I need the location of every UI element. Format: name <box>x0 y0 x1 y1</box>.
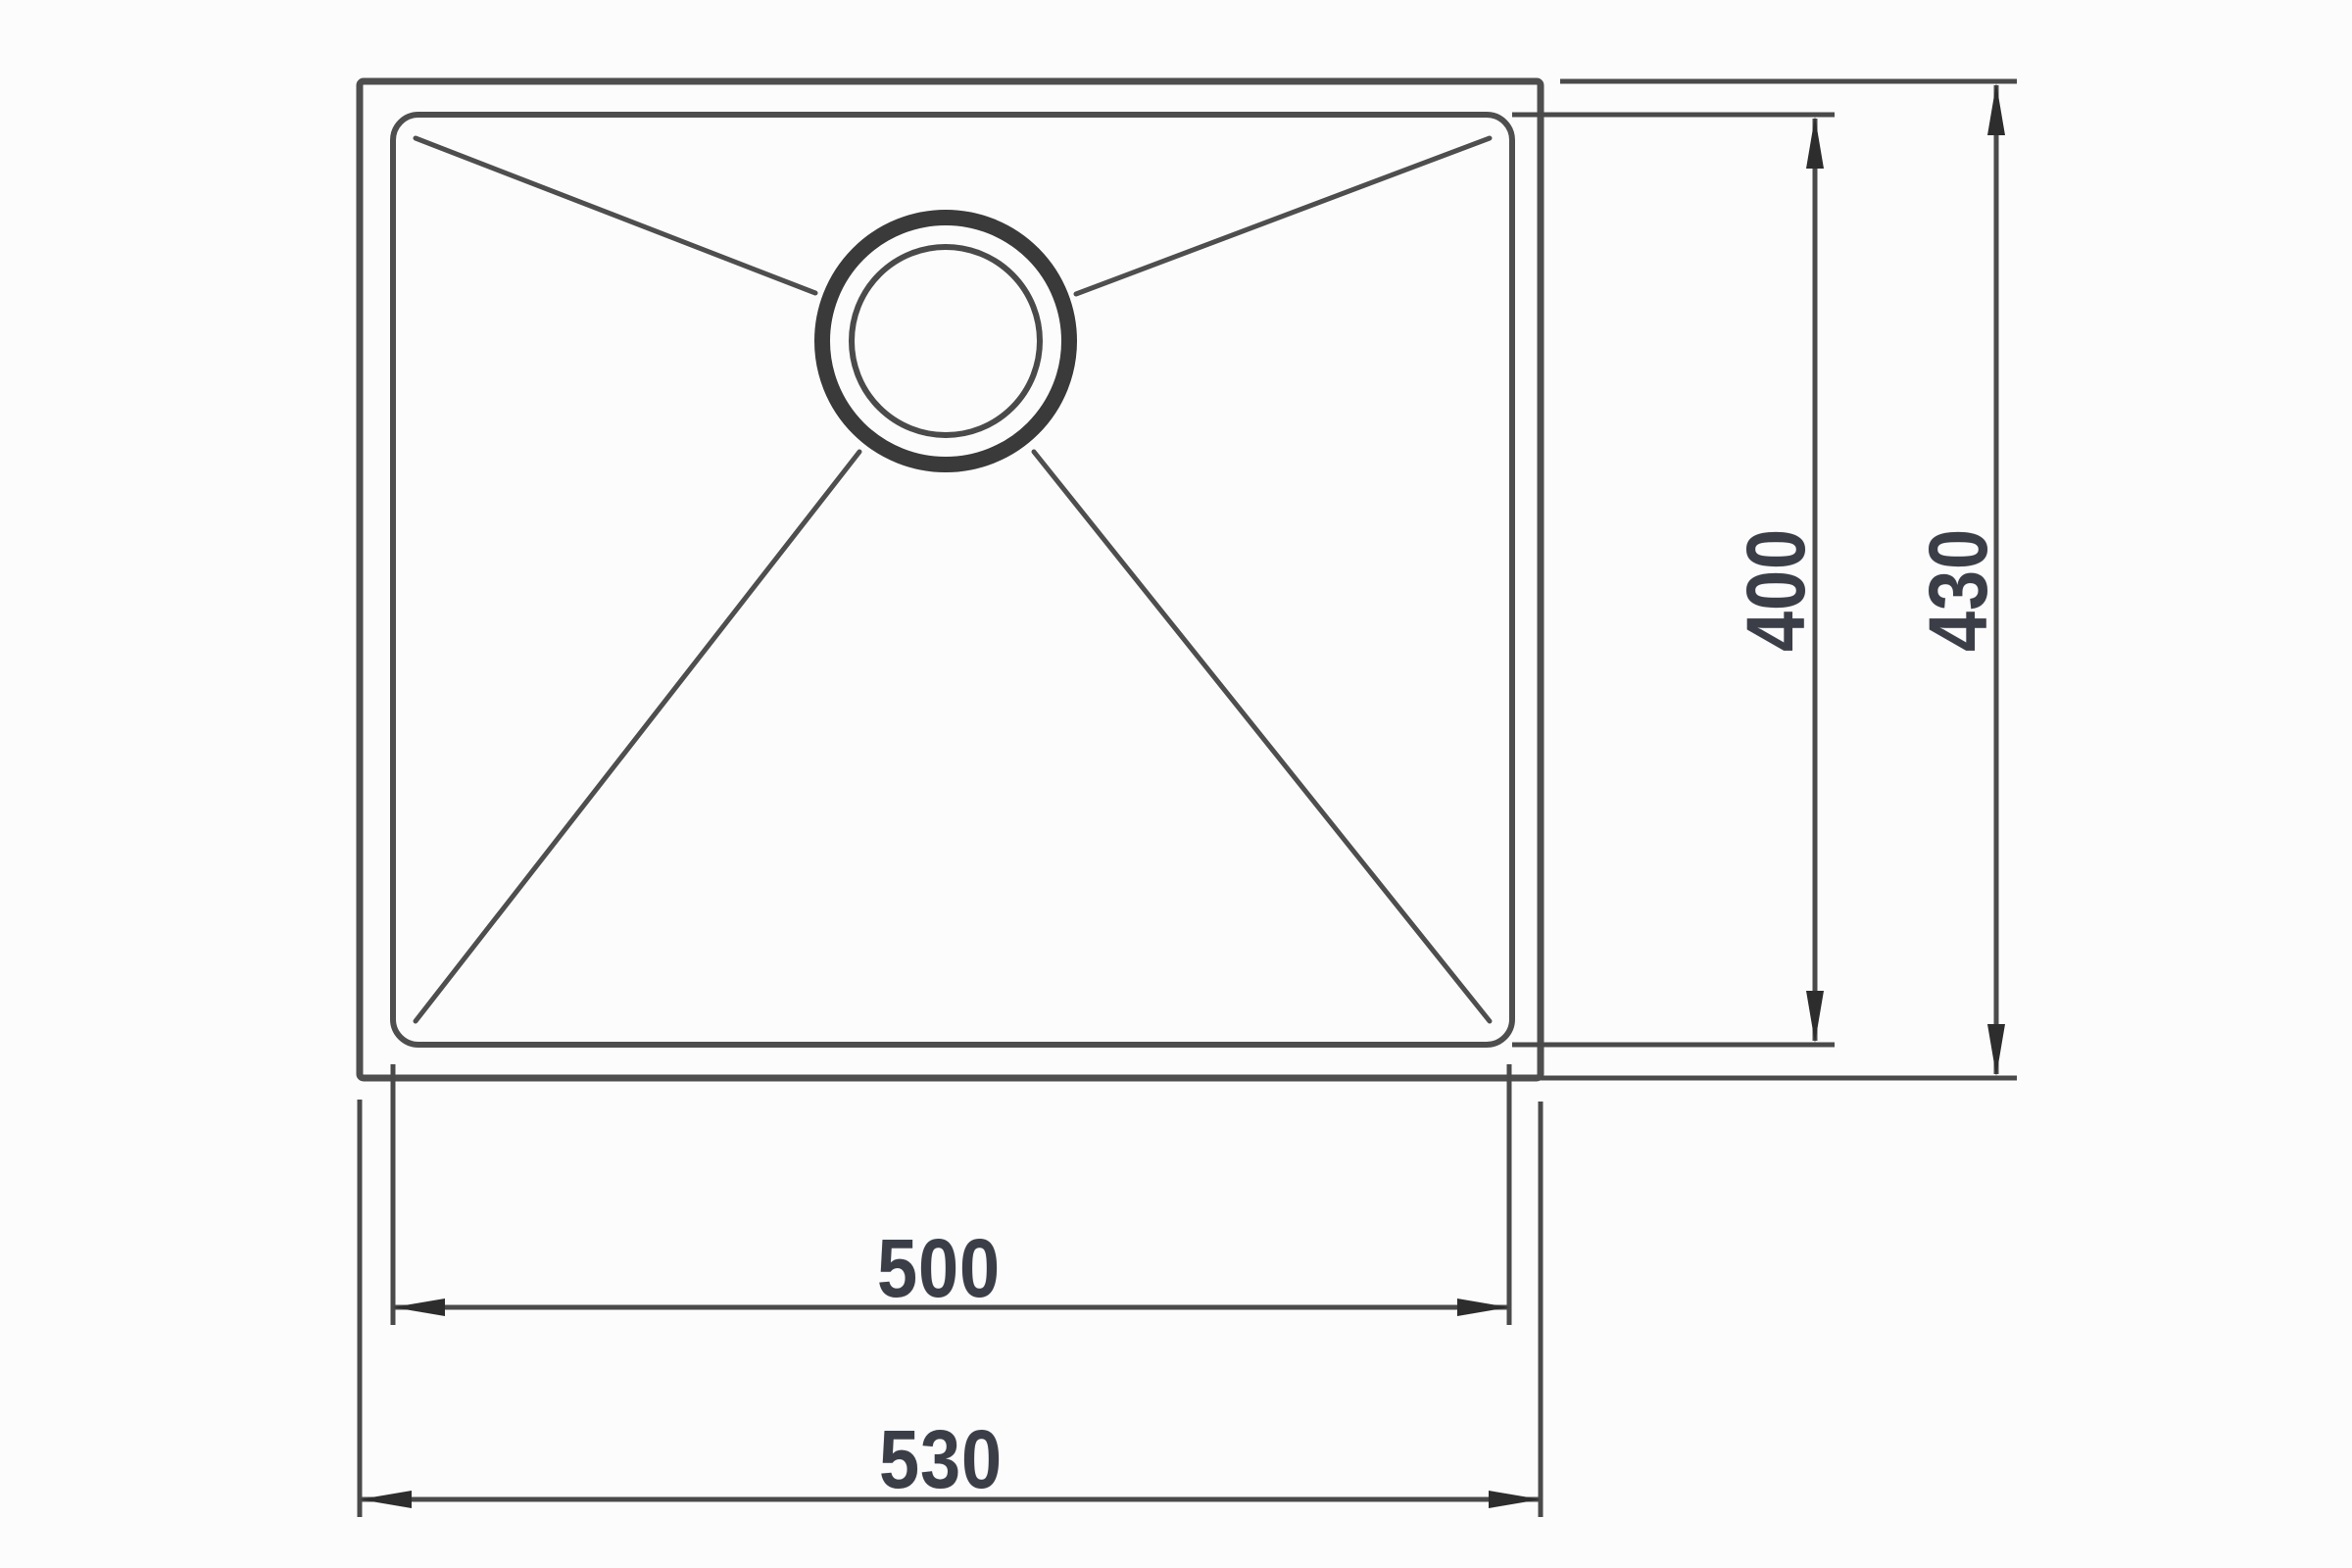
sink-body-group <box>360 81 1541 1078</box>
drain-group <box>822 218 1069 465</box>
arrow-down-outer-depth <box>1987 1024 2005 1076</box>
dimension-lines <box>362 85 1996 1499</box>
crease-line-bottom-left <box>416 452 859 1021</box>
dimension-label-outer-width: 530 <box>879 1418 1003 1500</box>
arrow-left-inner-width <box>393 1298 445 1316</box>
sink-technical-drawing-svg <box>0 0 2352 1568</box>
drain-inner-ring <box>852 247 1040 435</box>
arrow-up-inner-depth <box>1806 117 1824 169</box>
crease-line-top-right <box>1076 138 1490 294</box>
dimension-arrowheads <box>360 83 2005 1508</box>
crease-line-top-left <box>416 138 815 293</box>
drawing-canvas: 500 530 400 430 <box>0 0 2352 1568</box>
bowl-crease-lines <box>416 138 1490 1021</box>
dimension-label-outer-depth: 430 <box>1917 528 1999 652</box>
dimension-label-inner-width: 500 <box>877 1227 1001 1309</box>
arrow-down-inner-depth <box>1806 991 1824 1043</box>
arrow-right-outer-width <box>1489 1491 1541 1508</box>
crease-line-bottom-right <box>1034 452 1490 1021</box>
arrow-right-inner-width <box>1457 1298 1509 1316</box>
arrow-up-outer-depth <box>1987 83 2005 135</box>
dimension-label-inner-depth: 400 <box>1735 528 1817 652</box>
arrow-left-outer-width <box>360 1491 412 1508</box>
sink-outer-rect <box>360 81 1541 1078</box>
sink-inner-rect <box>393 115 1512 1045</box>
drain-outer-ring <box>822 218 1069 465</box>
